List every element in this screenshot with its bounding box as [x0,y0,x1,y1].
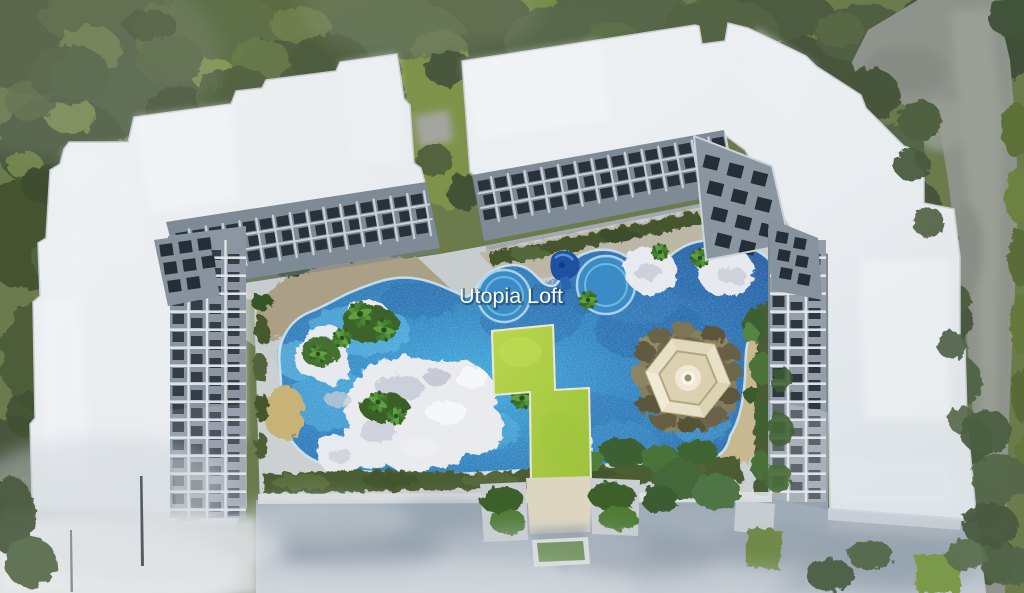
svg-text:Utopia Loft: Utopia Loft [459,284,563,308]
